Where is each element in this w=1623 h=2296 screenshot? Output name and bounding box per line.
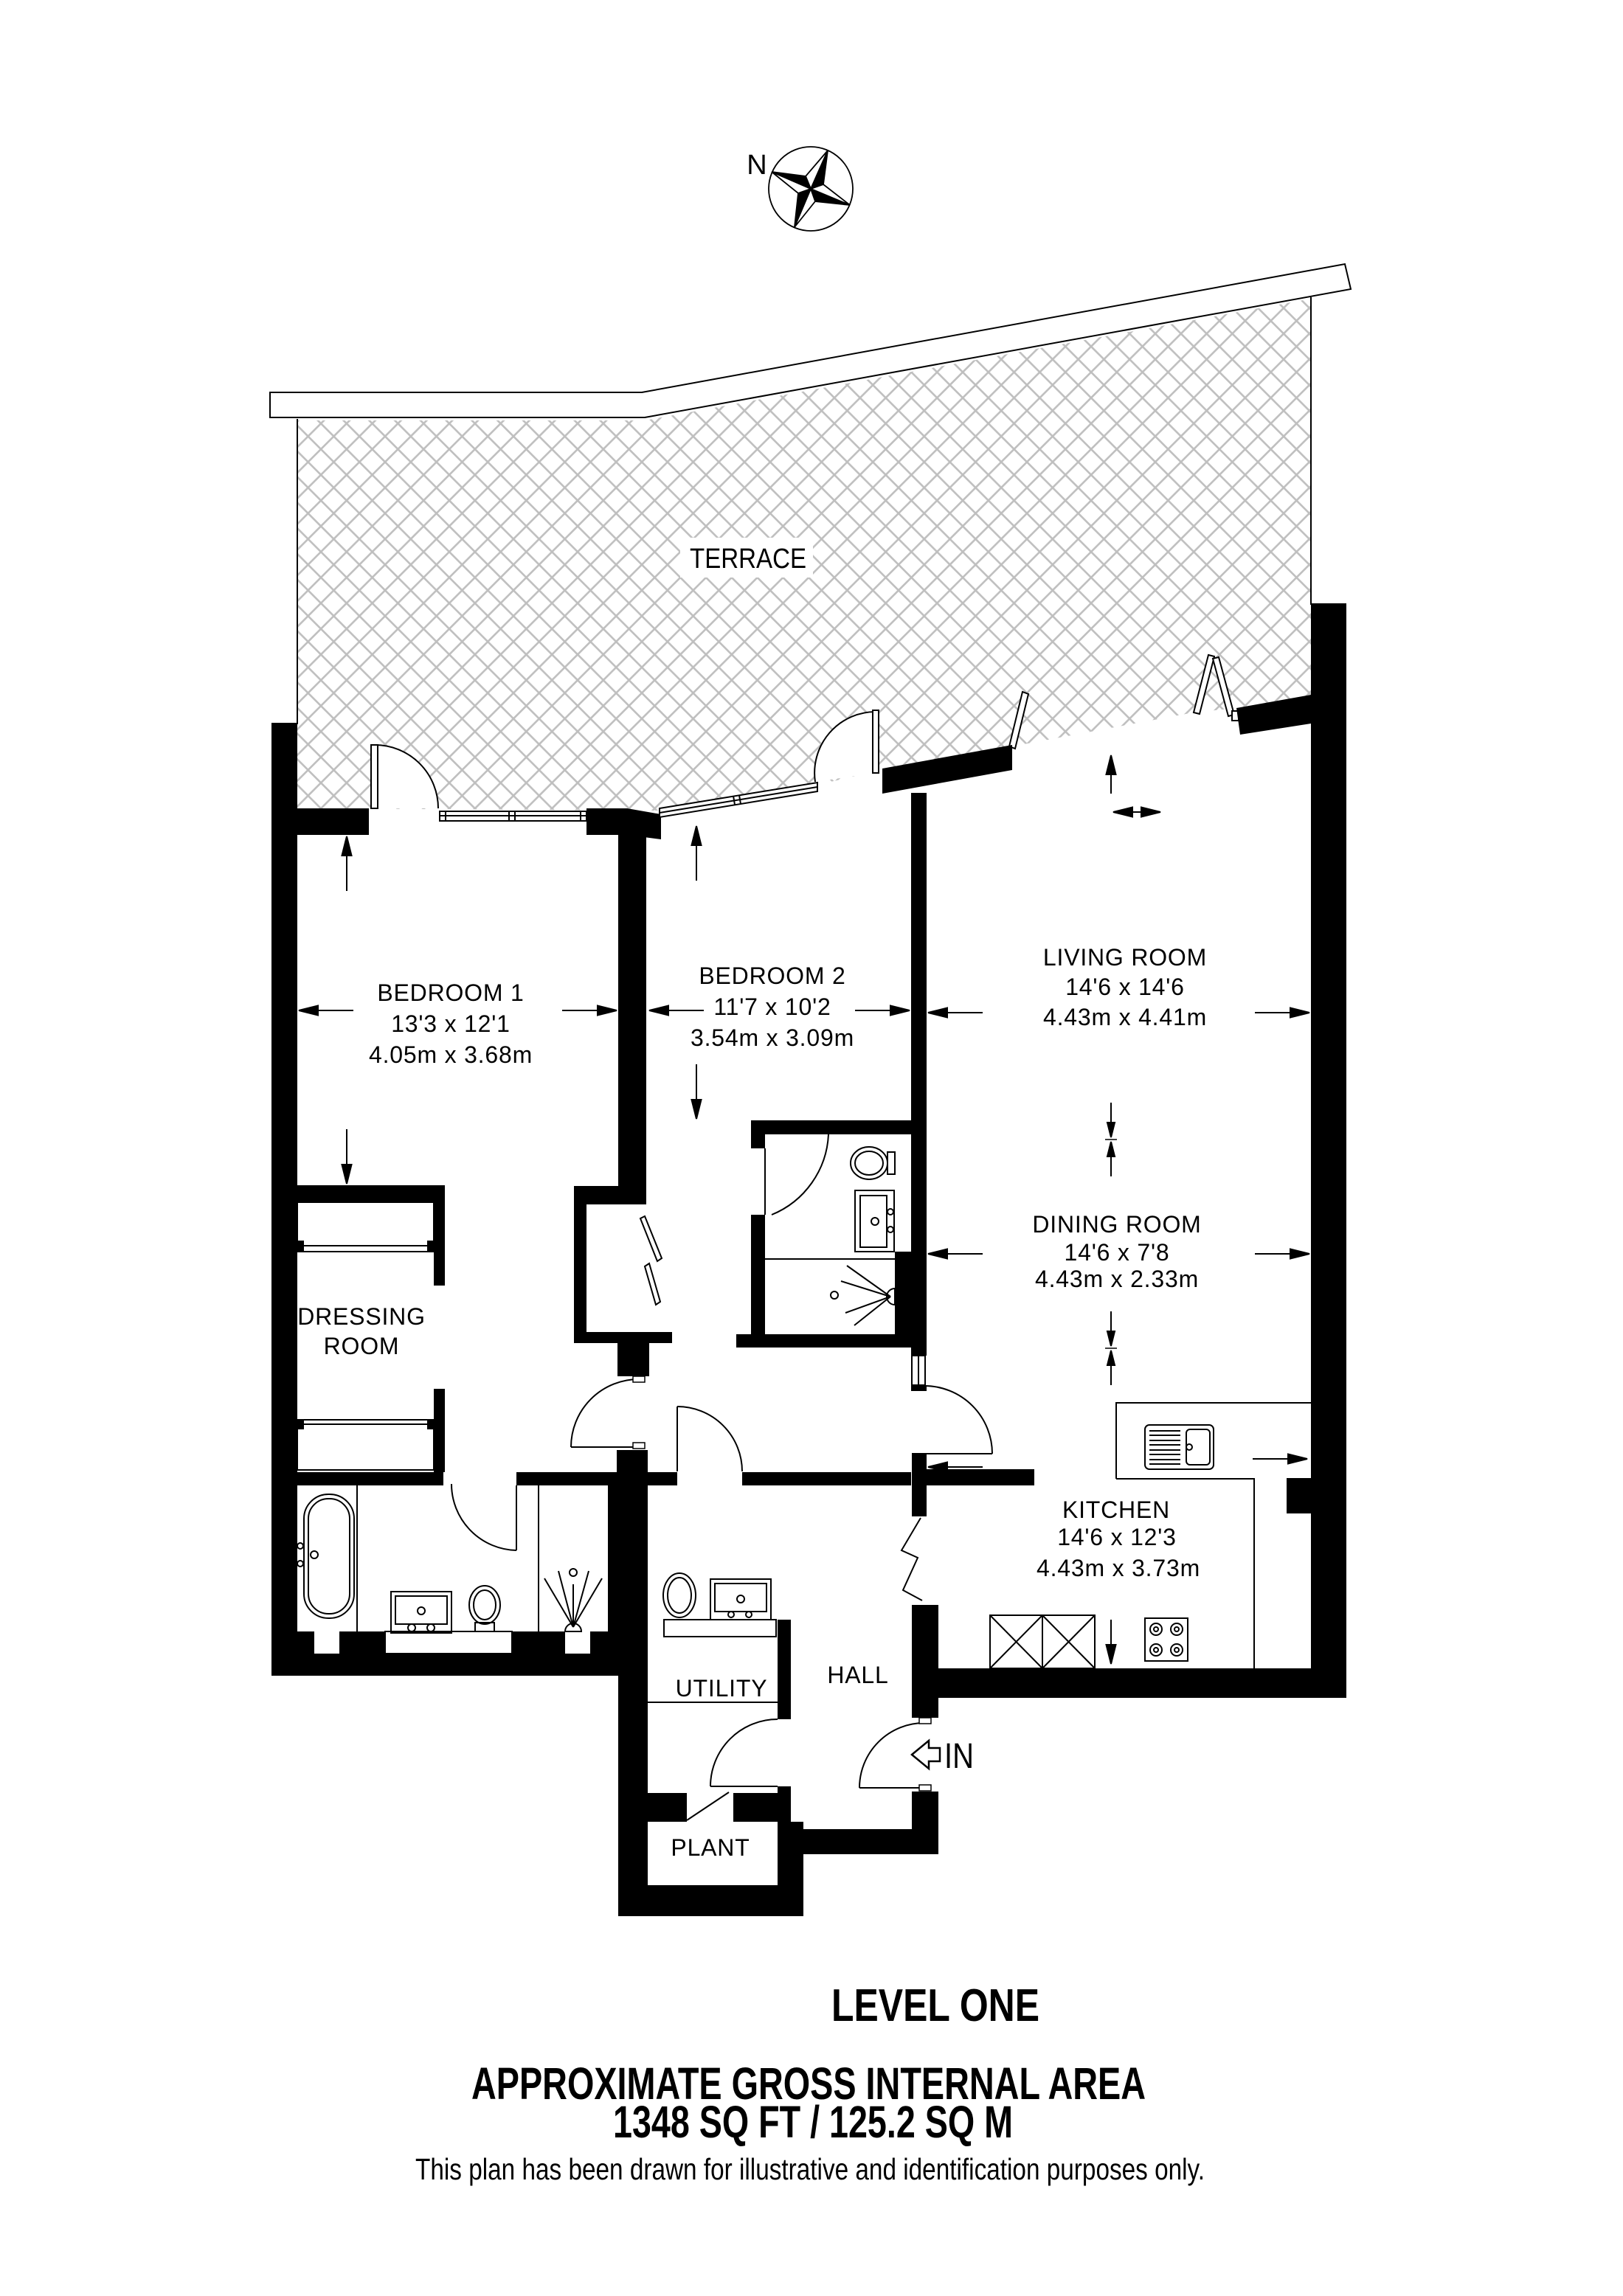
svg-text:4.43m x 4.41m: 4.43m x 4.41m	[1043, 1004, 1207, 1030]
svg-text:ROOM: ROOM	[324, 1333, 400, 1359]
svg-text:BEDROOM 1: BEDROOM 1	[377, 979, 524, 1006]
svg-text:14'6 x 14'6: 14'6 x 14'6	[1065, 974, 1185, 1000]
svg-text:IN: IN	[944, 1737, 974, 1776]
svg-text:14'6 x 7'8: 14'6 x 7'8	[1065, 1239, 1170, 1266]
svg-text:TERRACE: TERRACE	[690, 544, 806, 575]
svg-text:4.43m x 2.33m: 4.43m x 2.33m	[1035, 1266, 1199, 1292]
svg-text:DINING ROOM: DINING ROOM	[1032, 1211, 1201, 1238]
svg-text:LEVEL ONE: LEVEL ONE	[831, 1980, 1039, 2031]
svg-text:N: N	[747, 150, 766, 181]
svg-text:BEDROOM 2: BEDROOM 2	[699, 963, 845, 989]
svg-text:HALL: HALL	[827, 1662, 888, 1688]
svg-text:PLANT: PLANT	[671, 1834, 750, 1861]
svg-text:KITCHEN: KITCHEN	[1062, 1496, 1170, 1523]
svg-text:1348 SQ FT / 125.2 SQ M: 1348 SQ FT / 125.2 SQ M	[613, 2097, 1013, 2147]
svg-text:3.54m x 3.09m: 3.54m x 3.09m	[691, 1024, 854, 1051]
svg-text:LIVING ROOM: LIVING ROOM	[1043, 944, 1207, 971]
svg-text:14'6 x 12'3: 14'6 x 12'3	[1057, 1524, 1177, 1550]
svg-text:13'3 x 12'1: 13'3 x 12'1	[391, 1010, 511, 1037]
svg-text:4.43m x 3.73m: 4.43m x 3.73m	[1037, 1555, 1200, 1581]
svg-text:DRESSING: DRESSING	[297, 1303, 426, 1330]
svg-text:This plan has been drawn for i: This plan has been drawn for illustrativ…	[415, 2152, 1205, 2186]
svg-text:11'7 x 10'2: 11'7 x 10'2	[713, 993, 831, 1020]
svg-text:4.05m x 3.68m: 4.05m x 3.68m	[369, 1041, 533, 1068]
svg-text:UTILITY: UTILITY	[676, 1675, 768, 1702]
